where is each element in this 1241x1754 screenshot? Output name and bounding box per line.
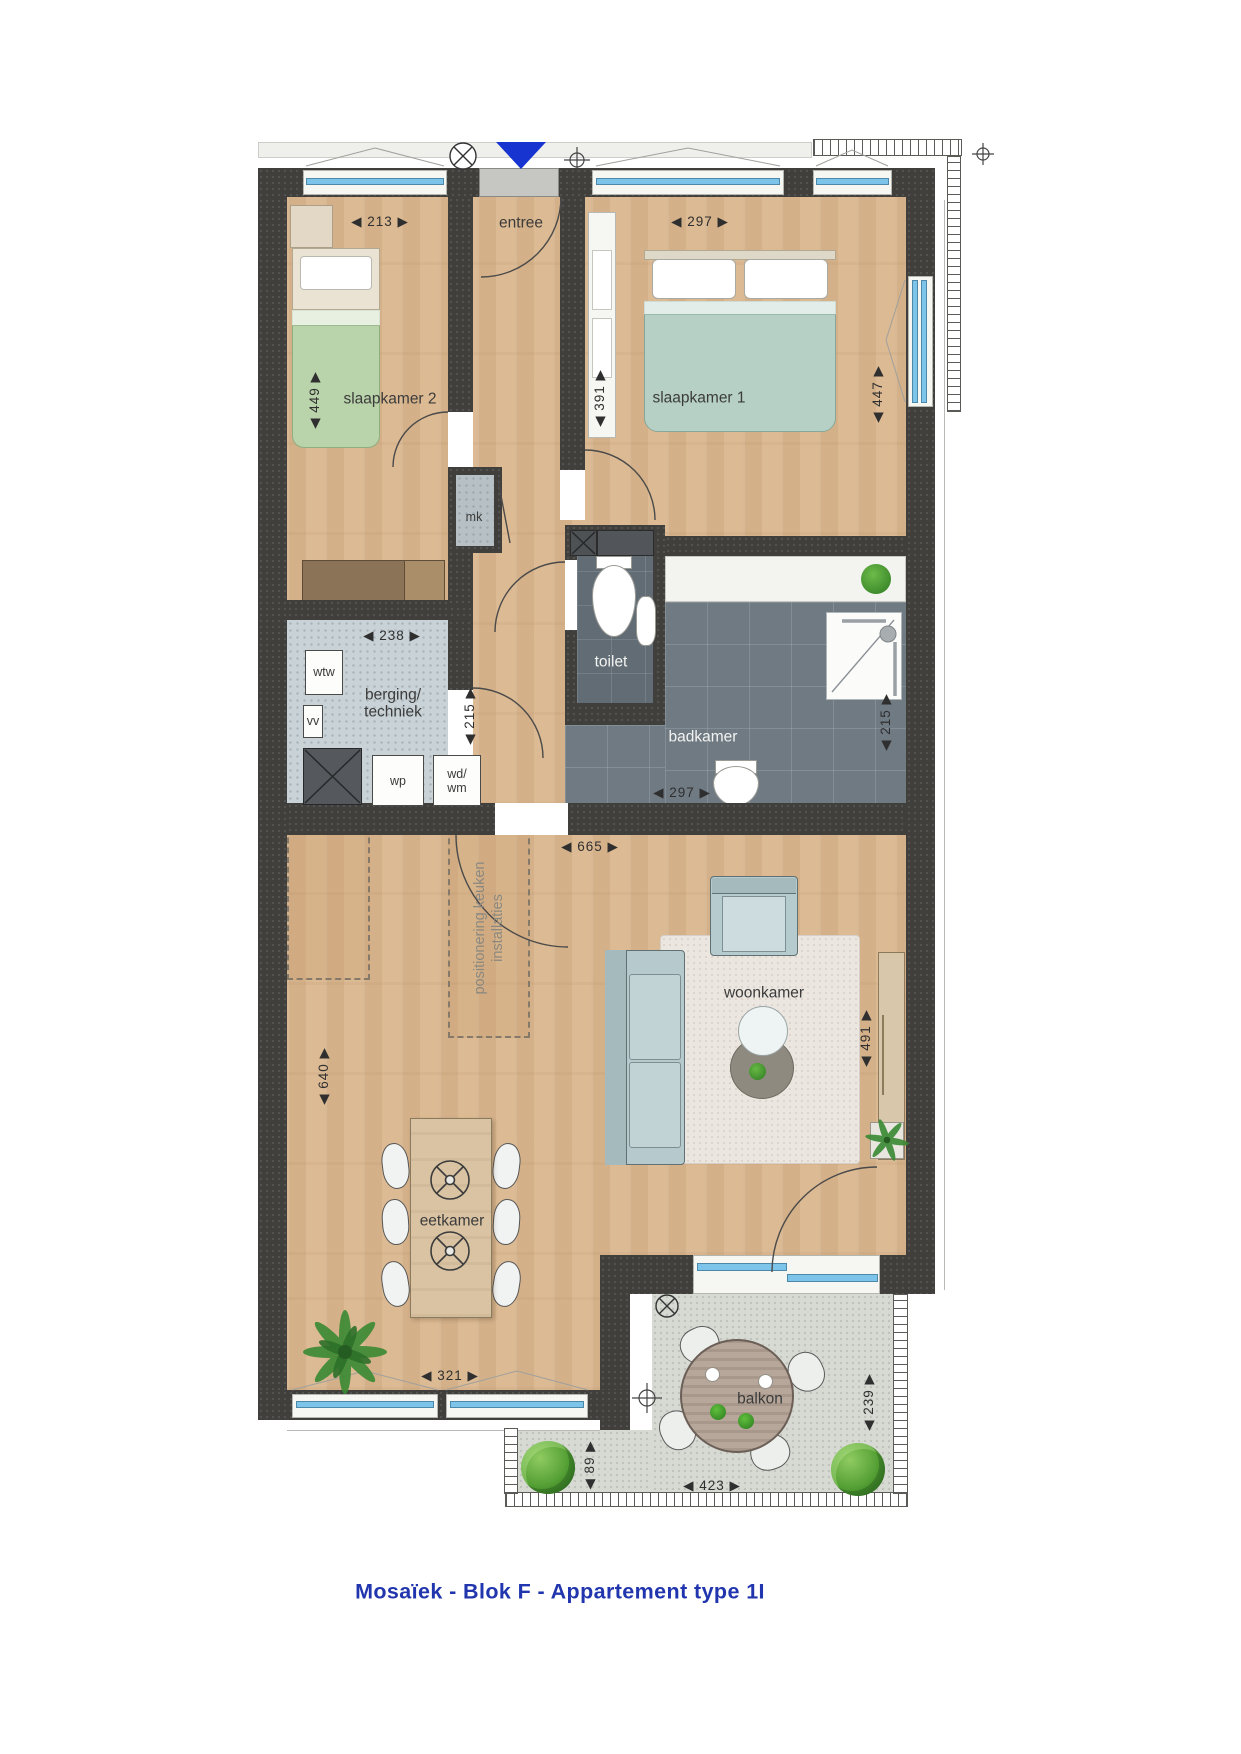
dim-eetkamer-breedte: ◀ 321 ▶: [421, 1368, 479, 1384]
label-eetkamer: eetkamer: [420, 1212, 485, 1229]
door-gap-toilet: [565, 560, 577, 630]
door-gap-slaapkamer2: [448, 412, 473, 467]
balkon-sliding-door-glass: [787, 1274, 878, 1282]
bush: [831, 1443, 885, 1496]
dim-slaapkamer1-nis: ◀ 391 ▶: [592, 369, 608, 427]
door-gap-woonkamer: [495, 803, 568, 835]
dim-balkon-diepte: ◀ 239 ▶: [861, 1373, 877, 1431]
wall-sk2-bottom: [287, 600, 473, 620]
label-keuken-note: positionering keuken installaties: [471, 861, 507, 994]
dim-woonkamer-links: ◀ 640 ▶: [316, 1047, 332, 1105]
dim-berging-diepte: ◀ 215 ▶: [462, 687, 478, 745]
bed2-pillow: [300, 256, 372, 290]
exterior-sill-band: [258, 142, 812, 158]
window-eetkamer-left-glass: [296, 1401, 434, 1408]
dim-woonkamer-opening: ◀ 665 ▶: [561, 839, 619, 855]
dim-woonkamer-rechts: ◀ 491 ▶: [858, 1009, 874, 1067]
coffee-table-white: [738, 1006, 788, 1056]
window-right-wall-glass: [921, 280, 927, 403]
balkon-railing-right: [893, 1294, 908, 1494]
window-top-right-glass: [816, 178, 889, 185]
bed2-sheet-fold: [292, 310, 380, 326]
sofa-back: [605, 950, 627, 1165]
label-slaapkamer1: slaapkamer 1: [652, 389, 745, 406]
label-berging: berging/ techniek: [364, 687, 422, 722]
wall-south-middle: [287, 803, 906, 835]
bed2-mattress: [292, 310, 380, 448]
label-wdwm: wd/ wm: [447, 767, 466, 795]
desk-light-part: [404, 560, 445, 603]
dim-badkamer-breedte: ◀ 297 ▶: [653, 785, 711, 801]
dim-badkamer-diepte: ◀ 215 ▶: [878, 693, 894, 751]
counter-plant: [861, 564, 891, 594]
wall-left: [258, 168, 287, 1420]
bed1-pillow: [744, 259, 828, 299]
sofa-cushion: [629, 974, 681, 1060]
window-eetkamer-right-glass: [450, 1401, 584, 1408]
label-mk: mk: [466, 510, 483, 524]
dim-berging-breedte: ◀ 238 ▶: [363, 628, 421, 644]
balkon-table-plate: [705, 1367, 720, 1382]
toilet-duct: [570, 530, 597, 556]
window-right-wall-glass: [912, 280, 918, 403]
label-toilet: toilet: [595, 653, 628, 670]
sideboard-planter: [870, 1122, 904, 1159]
balkon-table-plant: [710, 1404, 726, 1420]
shower: [826, 612, 902, 700]
label-wtw: wtw: [313, 665, 335, 679]
kitchen-counter-zone: [287, 818, 370, 980]
label-wp: wp: [390, 774, 406, 788]
balkon-table-plant: [738, 1413, 754, 1429]
right-side-hatch: [947, 156, 961, 412]
dim-slaapkamer1-breedte: ◀ 297 ▶: [671, 214, 729, 230]
label-slaapkamer2: slaapkamer 2: [343, 390, 436, 407]
door-gap-slaapkamer1: [560, 470, 585, 520]
wall-badkamer-top: [665, 536, 906, 556]
bed1-mattress: [644, 301, 836, 432]
armchair-seat: [722, 896, 786, 952]
dim-balkon-breedte: ◀ 423 ▶: [683, 1478, 741, 1494]
window-slaapkamer1-glass: [596, 178, 780, 185]
toilet-sink: [636, 596, 656, 646]
entree-door: [479, 168, 559, 197]
label-balkon: balkon: [737, 1390, 783, 1407]
floor-plan-page: entree slaapkamer 2 slaapkamer 1 mk wtw …: [0, 0, 1241, 1754]
label-entree: entree: [499, 214, 543, 231]
balkon-railing-left: [504, 1428, 518, 1494]
label-woonkamer: woonkamer: [724, 984, 804, 1001]
dim-slaapkamer2-diepte: ◀ 449 ▶: [307, 371, 323, 429]
walkway-line-bottom: [287, 1430, 600, 1431]
label-badkamer: badkamer: [669, 728, 738, 745]
sofa-cushion: [629, 1062, 681, 1148]
bed1-sheet-fold: [644, 301, 836, 315]
wardrobe-shelf: [592, 250, 612, 310]
label-vv: vv: [307, 714, 320, 728]
window-slaapkamer2-glass: [306, 178, 444, 185]
wall-hall-sk1: [560, 197, 585, 470]
toilet-duct-box: [597, 530, 654, 556]
dim-slaapkamer1-diepte: ◀ 447 ▶: [870, 365, 886, 423]
armchair-back: [712, 878, 796, 894]
bed1-pillow: [652, 259, 736, 299]
dim-balkon-zijde: ◀ 89 ▶: [582, 1440, 598, 1489]
floor-badkamer-lower: [565, 725, 665, 803]
dim-slaapkamer2-breedte: ◀ 213 ▶: [351, 214, 409, 230]
balkon-walkway-gap: [630, 1294, 652, 1430]
page-title: Mosaïek - Blok F - Appartement type 1I: [355, 1580, 765, 1605]
sideboard-handle: [882, 1015, 884, 1095]
walkway-line-right: [944, 200, 945, 1290]
dresser: [290, 205, 333, 248]
table-plant: [749, 1063, 766, 1080]
canopy-hatch: [813, 139, 962, 156]
shaft: [303, 748, 362, 805]
balkon-table-plate: [758, 1374, 773, 1389]
balkon-sliding-door-glass: [697, 1263, 787, 1271]
wall-sk2-hall-upper: [448, 197, 473, 412]
bush: [521, 1441, 575, 1494]
crosshair-icon: [977, 148, 989, 160]
